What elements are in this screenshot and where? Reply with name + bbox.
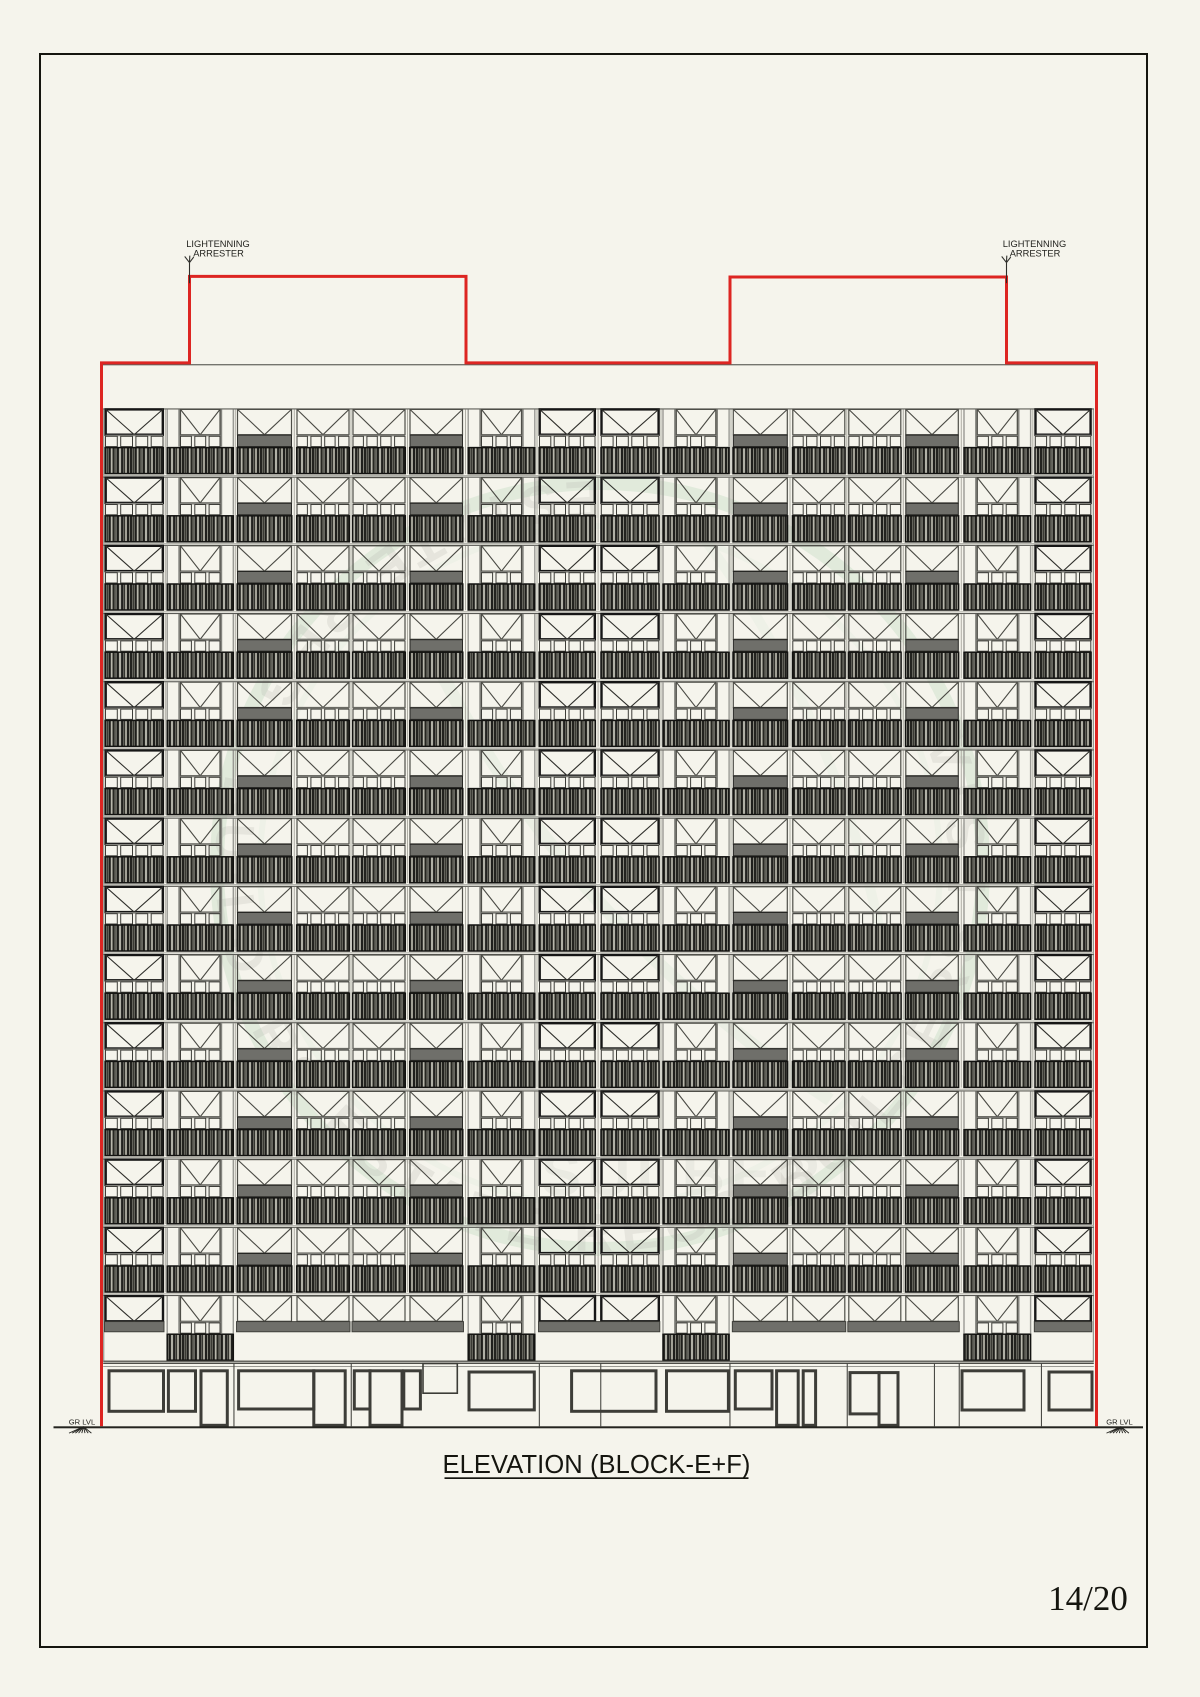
svg-text:GR LVL: GR LVL bbox=[1106, 1417, 1132, 1426]
svg-text:GR LVL: GR LVL bbox=[69, 1417, 95, 1426]
svg-text:ELEVATION (BLOCK-E+F): ELEVATION (BLOCK-E+F) bbox=[443, 1451, 751, 1479]
svg-text:14/20: 14/20 bbox=[1048, 1579, 1128, 1618]
svg-text:LIGHTENNING: LIGHTENNING bbox=[186, 239, 250, 249]
svg-text:LIGHTENNING: LIGHTENNING bbox=[1003, 239, 1067, 249]
svg-text:ARRESTER: ARRESTER bbox=[1010, 249, 1061, 259]
svg-text:ARRESTER: ARRESTER bbox=[193, 249, 244, 259]
